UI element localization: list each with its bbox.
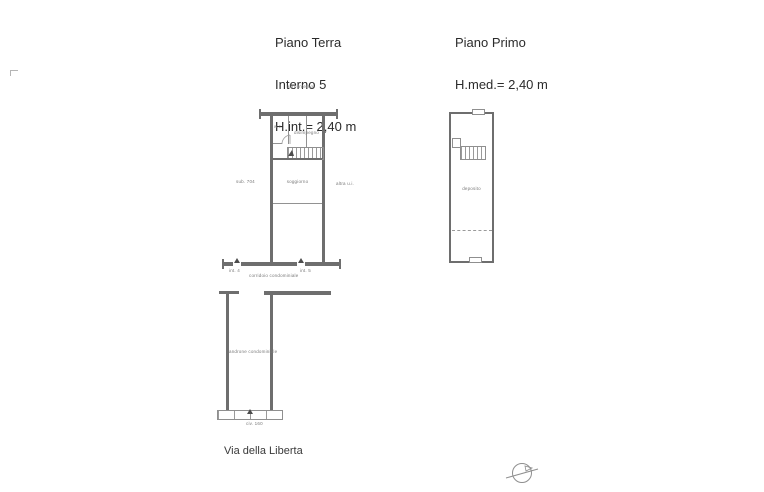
floorplan-page: Piano Terra Interno 5 H.int.= 2,40 m Pia… <box>0 0 764 492</box>
corridor-wall-cap-left <box>222 259 224 269</box>
ground-room-divider <box>273 203 322 204</box>
hall-label: disimpegno <box>294 130 319 135</box>
ground-title-line1: Piano Terra <box>275 36 356 50</box>
civic-number-label: civ. 160 <box>246 421 263 426</box>
ground-left-wall <box>270 116 273 262</box>
first-title-line2: H.med.= 2,40 m <box>455 78 548 92</box>
street-name-label: Via della Liberta <box>224 445 303 457</box>
first-floor-bottom-marking <box>469 257 482 263</box>
ground-top-wall-cap-left <box>259 109 261 119</box>
ground-top-wall-cap-right <box>336 109 338 119</box>
adjacent-unit-annotation: altra u.i. <box>336 181 354 186</box>
first-floor-stairs <box>460 146 486 160</box>
ground-stairs-arrow-icon <box>288 150 294 156</box>
androne-cap-top-right <box>264 291 331 295</box>
corridor-door-arrow-left-icon <box>234 258 240 263</box>
first-floor-dashed-line <box>452 230 492 231</box>
corridor-door-arrow-right-icon <box>298 258 304 263</box>
wc-label: w.c. <box>274 124 283 129</box>
first-title-line1: Piano Primo <box>455 36 548 50</box>
first-floor-top-marking <box>472 109 485 115</box>
ground-right-wall <box>322 116 325 262</box>
ground-room-label: soggiorno <box>273 179 322 184</box>
androne-cap-top-left <box>219 291 239 294</box>
sub-annotation: sub. 704 <box>236 179 255 184</box>
androne-label: androne condominiale <box>229 349 277 354</box>
androne-entrance-arrow-icon <box>247 409 253 414</box>
corridor-door-left-label: int. 4 <box>229 268 240 273</box>
corridor-door-right-label: int. 5 <box>300 268 311 273</box>
north-arrow-icon <box>503 459 541 487</box>
first-floor-title: Piano Primo H.med.= 2,40 m <box>455 8 548 120</box>
first-floor-room-label: deposito <box>451 186 492 191</box>
corridor-wall-cap-right <box>339 259 341 269</box>
wc-door-arc <box>281 134 291 144</box>
wall-below-stairs <box>273 158 322 160</box>
ground-above-label: altro interno <box>278 84 322 89</box>
page-corner-mark <box>10 70 18 76</box>
corridor-label: corridoio condominiale <box>249 273 298 278</box>
